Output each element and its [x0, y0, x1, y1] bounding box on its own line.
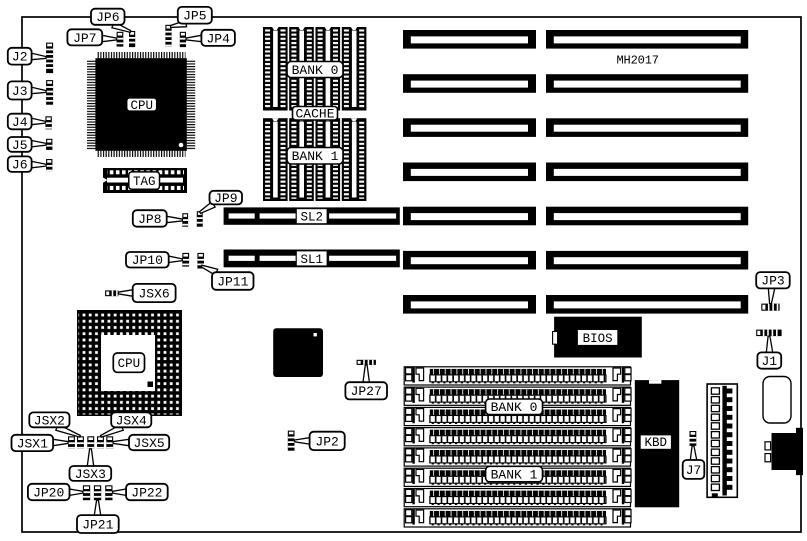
svg-text:JSX3: JSX3 [75, 467, 106, 482]
svg-text:BANK 1: BANK 1 [491, 468, 538, 483]
svg-text:SL1: SL1 [300, 253, 323, 267]
svg-text:JP22: JP22 [131, 485, 162, 500]
svg-text:BANK 0: BANK 0 [491, 400, 538, 415]
svg-text:JSX5: JSX5 [133, 436, 164, 451]
svg-text:JP9: JP9 [214, 191, 237, 206]
svg-text:JP5: JP5 [183, 9, 206, 24]
svg-text:CPU: CPU [118, 357, 141, 371]
svg-text:TAG: TAG [133, 175, 156, 189]
svg-text:JP3: JP3 [761, 274, 784, 289]
svg-text:JP6: JP6 [96, 10, 119, 25]
svg-text:JP11: JP11 [217, 274, 248, 289]
svg-text:KBD: KBD [645, 436, 668, 450]
svg-text:J7: J7 [686, 463, 702, 478]
svg-text:CACHE: CACHE [295, 107, 334, 122]
svg-text:JP7: JP7 [73, 31, 96, 46]
svg-text:JSX2: JSX2 [34, 413, 65, 428]
svg-text:JP4: JP4 [206, 31, 230, 46]
svg-text:CPU: CPU [130, 99, 153, 113]
svg-text:J4: J4 [12, 115, 28, 130]
svg-text:JP10: JP10 [132, 253, 163, 268]
svg-text:SL2: SL2 [300, 211, 323, 225]
svg-text:JSX1: JSX1 [17, 436, 48, 451]
svg-text:JP21: JP21 [82, 518, 113, 533]
svg-text:BIOS: BIOS [583, 332, 613, 346]
svg-text:BANK 0: BANK 0 [292, 63, 339, 78]
svg-text:J6: J6 [12, 158, 28, 173]
svg-text:JP20: JP20 [33, 485, 64, 500]
svg-text:JP2: JP2 [315, 434, 338, 449]
svg-text:JP8: JP8 [138, 212, 161, 227]
svg-text:J3: J3 [12, 84, 28, 99]
svg-text:JP27: JP27 [351, 384, 382, 399]
svg-text:JSX4: JSX4 [116, 413, 147, 428]
svg-text:J2: J2 [12, 50, 28, 65]
svg-text:J1: J1 [761, 354, 777, 369]
svg-text:J5: J5 [12, 138, 28, 153]
svg-text:JSX6: JSX6 [138, 286, 169, 301]
svg-text:MH2017: MH2017 [617, 54, 660, 68]
svg-text:BANK 1: BANK 1 [292, 149, 339, 164]
